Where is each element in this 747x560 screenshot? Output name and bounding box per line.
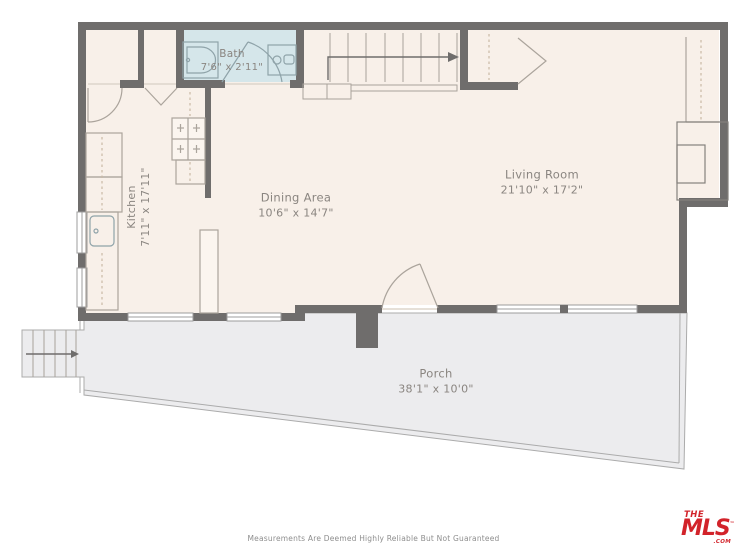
porch-label: Porch 38'1" x 10'0": [398, 366, 474, 397]
room-dims: 7'6" x 2'11": [201, 61, 263, 74]
room-dims: 10'6" x 14'7": [258, 206, 334, 221]
living-room-label: Living Room 21'10" x 17'2": [501, 167, 584, 198]
floor-plan-page: Bath 7'6" x 2'11" Kitchen 7'11" x 17'11"…: [0, 0, 747, 560]
room-name: Living Room: [501, 167, 584, 183]
room-dims: 21'10" x 17'2": [501, 183, 584, 198]
room-name: Bath: [201, 48, 263, 61]
room-name: Kitchen: [124, 167, 139, 246]
peninsula-counter: [200, 230, 218, 313]
mls-logo: THE MLS™ .COM: [681, 511, 733, 551]
trademark-symbol: ™: [730, 521, 735, 527]
kitchen-label: Kitchen 7'11" x 17'11": [124, 167, 154, 246]
porch-area: [22, 313, 687, 469]
room-dims: 38'1" x 10'0": [398, 382, 474, 397]
dining-label: Dining Area 10'6" x 14'7": [258, 190, 334, 221]
logo-com: .COM: [714, 540, 731, 546]
floor-plan-drawing: [0, 0, 747, 560]
room-dims: 7'11" x 17'11": [139, 167, 154, 246]
bath-label: Bath 7'6" x 2'11": [201, 48, 263, 74]
logo-mls: MLS™: [681, 518, 733, 540]
room-name: Dining Area: [258, 190, 334, 206]
room-name: Porch: [398, 366, 474, 382]
disclaimer-text: Measurements Are Deemed Highly Reliable …: [247, 534, 499, 543]
